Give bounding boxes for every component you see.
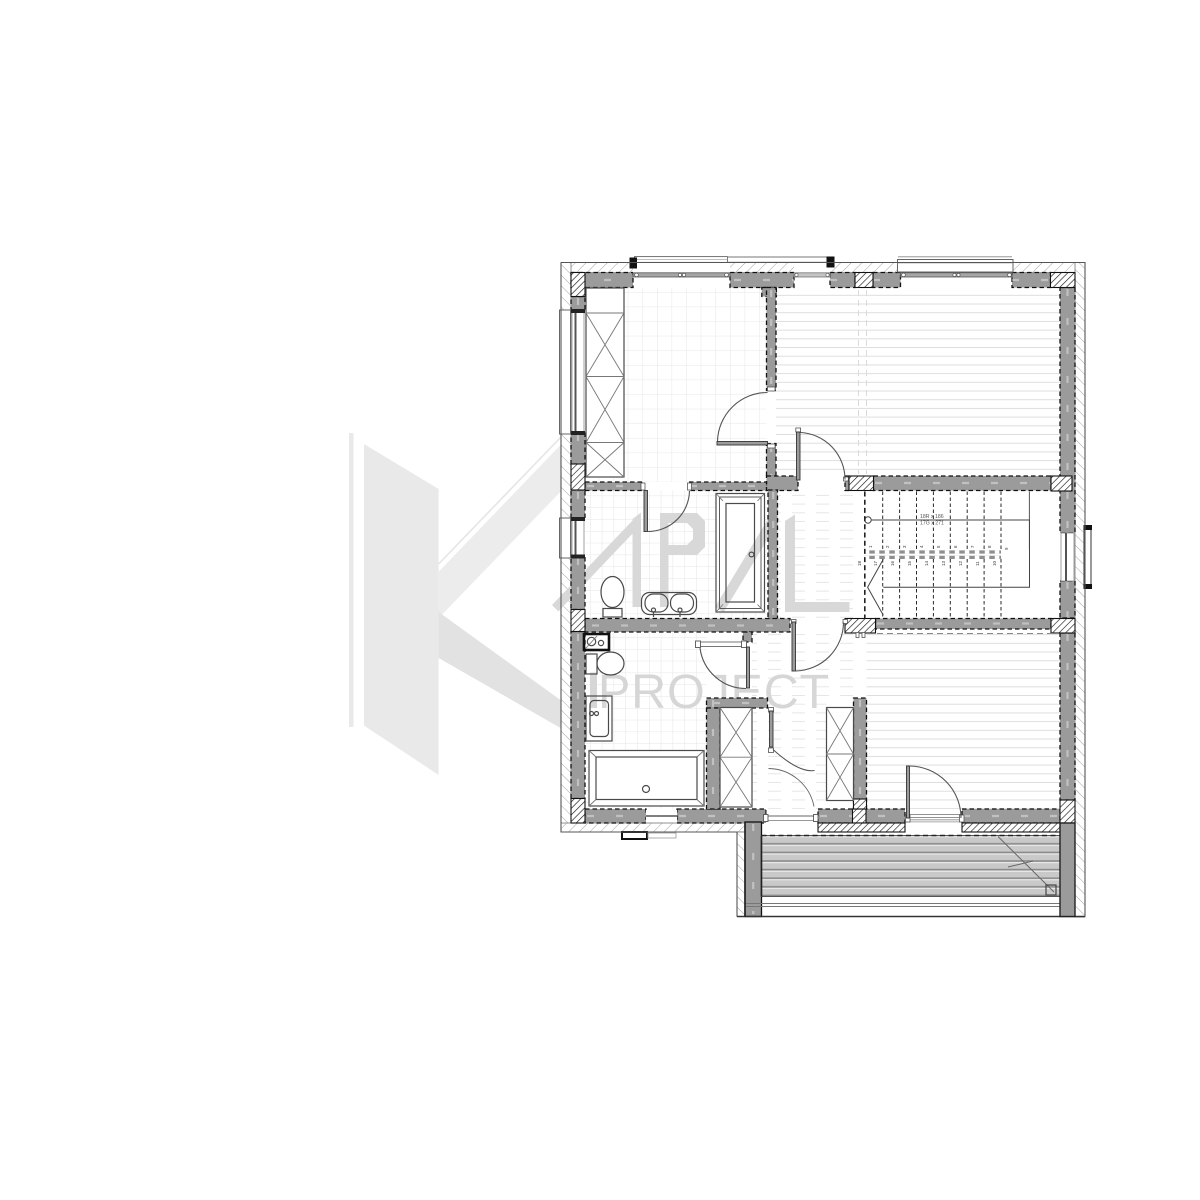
svg-text:18R x 186: 18R x 186 [920,514,944,520]
svg-text:15: 15 [907,560,912,566]
svg-text:18: 18 [857,560,862,566]
svg-text:16: 16 [890,560,895,566]
svg-text:17: 17 [873,560,878,566]
svg-text:13: 13 [941,560,946,566]
svg-text:10: 10 [992,560,997,566]
svg-text:17G x 271: 17G x 271 [920,521,944,527]
svg-text:14: 14 [924,560,929,566]
svg-text:11: 11 [975,561,980,566]
svg-text:12: 12 [958,560,963,566]
